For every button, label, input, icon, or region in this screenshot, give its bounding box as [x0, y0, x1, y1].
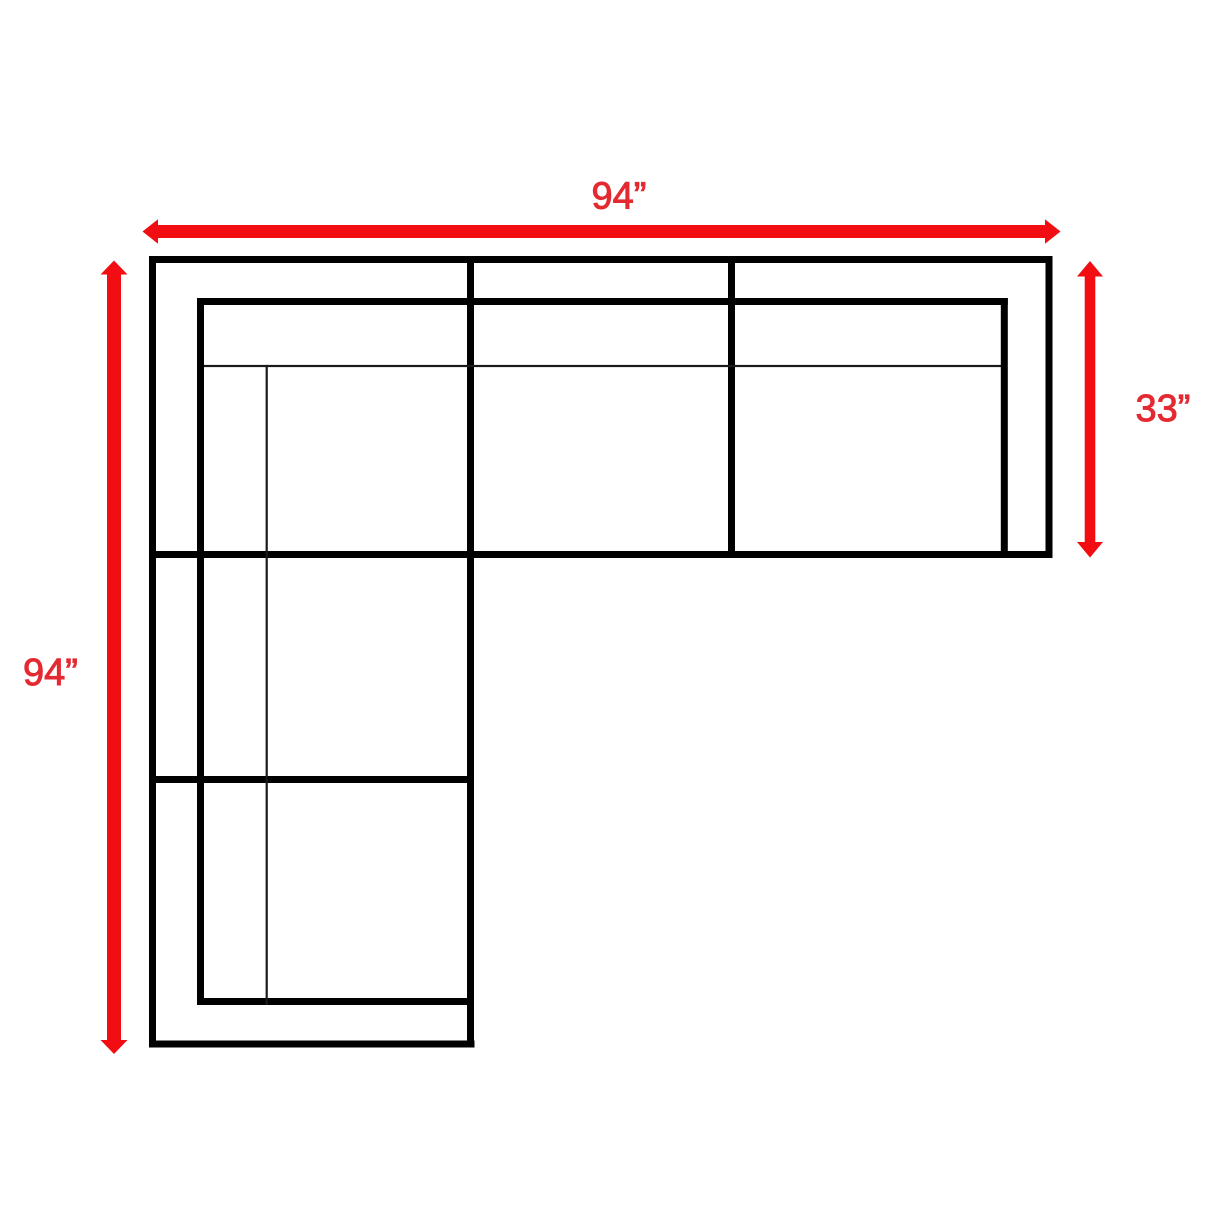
svg-text:94”: 94”	[23, 652, 78, 694]
svg-text:33”: 33”	[1136, 388, 1191, 430]
svg-text:94”: 94”	[592, 176, 647, 218]
